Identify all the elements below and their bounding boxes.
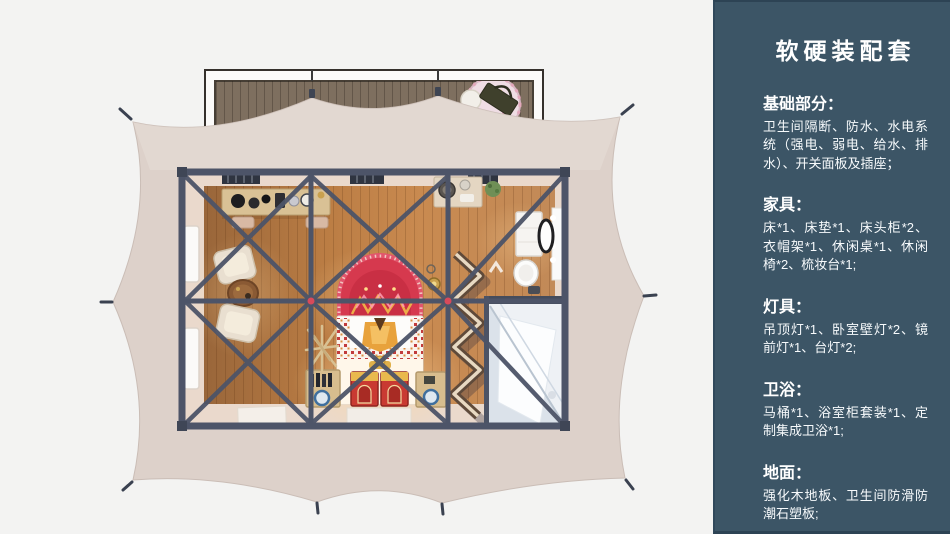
section-body: 强化木地板、卫生间防滑防潮石塑板;: [763, 487, 928, 524]
frame-joint: [445, 298, 452, 305]
plant: [485, 181, 501, 197]
canvas-hook: [309, 89, 315, 98]
round-mirror: [539, 220, 553, 252]
section-bathroom: 卫浴： 马桶*1、浴室柜套装*1、定制集成卫浴*1;: [763, 381, 928, 441]
section-body: 卫生间隔断、防水、水电系统（强电、弱电、给水、排水）、开关面板及插座；: [763, 118, 928, 173]
section-heading: 家具：: [763, 196, 928, 216]
section-heading: 灯具：: [763, 298, 928, 318]
section-body: 床*1、床垫*1、床头柜*2、衣帽架*1、休闲桌*1、休闲椅*2、梳妆台*1;: [763, 219, 928, 274]
frame-joint: [308, 298, 315, 305]
tent-top-view-illustration: [0, 0, 713, 534]
bathroom-pod: [484, 296, 567, 428]
tent-render: [0, 0, 713, 534]
panel-title: 软硬装配套: [763, 32, 928, 66]
left-wall-window: [184, 328, 199, 389]
info-panel: 软硬装配套 基础部分： 卫生间隔断、防水、水电系统（强电、弱电、给水、排水）、开…: [713, 0, 950, 534]
section-heading: 地面：: [763, 464, 928, 484]
section-basics: 基础部分： 卫生间隔断、防水、水电系统（强电、弱电、给水、排水）、开关面板及插座…: [763, 95, 928, 173]
section-flooring: 地面： 强化木地板、卫生间防滑防潮石塑板;: [763, 464, 928, 524]
section-heading: 卫浴：: [763, 381, 928, 401]
left-wall-window: [184, 226, 199, 282]
section-heading: 基础部分：: [763, 95, 928, 115]
canvas-hook: [435, 87, 441, 96]
section-furniture: 家具： 床*1、床垫*1、床头柜*2、衣帽架*1、休闲桌*1、休闲椅*2、梳妆台…: [763, 196, 928, 274]
section-body: 吊顶灯*1、卧室壁灯*2、镜前灯*1、台灯*2;: [763, 321, 928, 358]
slide: 软硬装配套 基础部分： 卫生间隔断、防水、水电系统（强电、弱电、给水、排水）、开…: [0, 0, 950, 534]
section-lighting: 灯具： 吊顶灯*1、卧室壁灯*2、镜前灯*1、台灯*2;: [763, 298, 928, 358]
section-body: 马桶*1、浴室柜套装*1、定制集成卫浴*1;: [763, 404, 928, 441]
bed: [337, 253, 423, 404]
